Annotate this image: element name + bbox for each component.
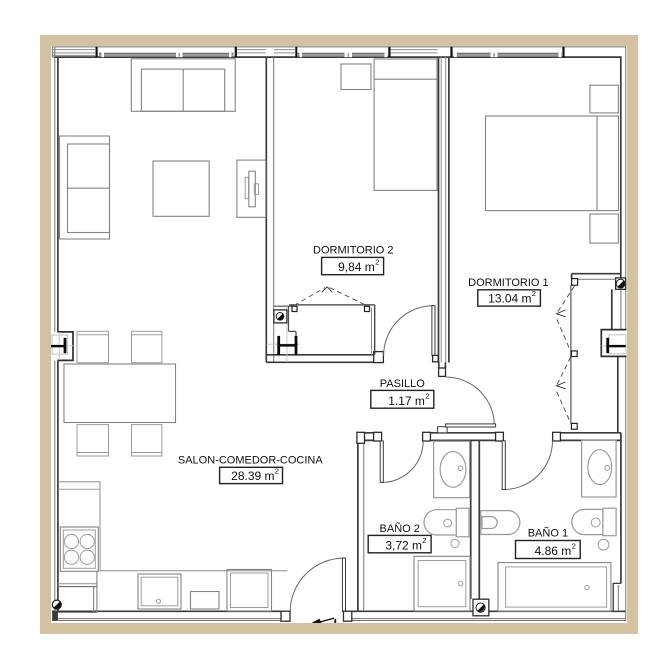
svg-text:PASILLO: PASILLO [380, 378, 425, 390]
svg-text:2: 2 [532, 289, 536, 298]
svg-text:9,84 m: 9,84 m [338, 260, 375, 274]
svg-text:2: 2 [425, 391, 429, 400]
svg-text:2: 2 [422, 536, 426, 545]
svg-text:DORMITORIO 2: DORMITORIO 2 [313, 244, 393, 256]
svg-text:BAÑO 1: BAÑO 1 [528, 527, 568, 540]
svg-text:1.17 m: 1.17 m [388, 394, 425, 408]
svg-text:28.39 m: 28.39 m [231, 469, 274, 483]
svg-text:2: 2 [375, 258, 379, 267]
svg-text:4.86 m: 4.86 m [535, 544, 572, 558]
svg-text:2: 2 [275, 466, 279, 475]
svg-text:13.04 m: 13.04 m [488, 292, 531, 306]
svg-text:3,72 m: 3,72 m [385, 538, 422, 552]
svg-text:BAÑO 2: BAÑO 2 [380, 522, 420, 535]
svg-text:SALON-COMEDOR-COCINA: SALON-COMEDOR-COCINA [178, 454, 324, 466]
svg-text:DORMITORIO 1: DORMITORIO 1 [468, 277, 548, 289]
svg-text:2: 2 [572, 542, 576, 551]
